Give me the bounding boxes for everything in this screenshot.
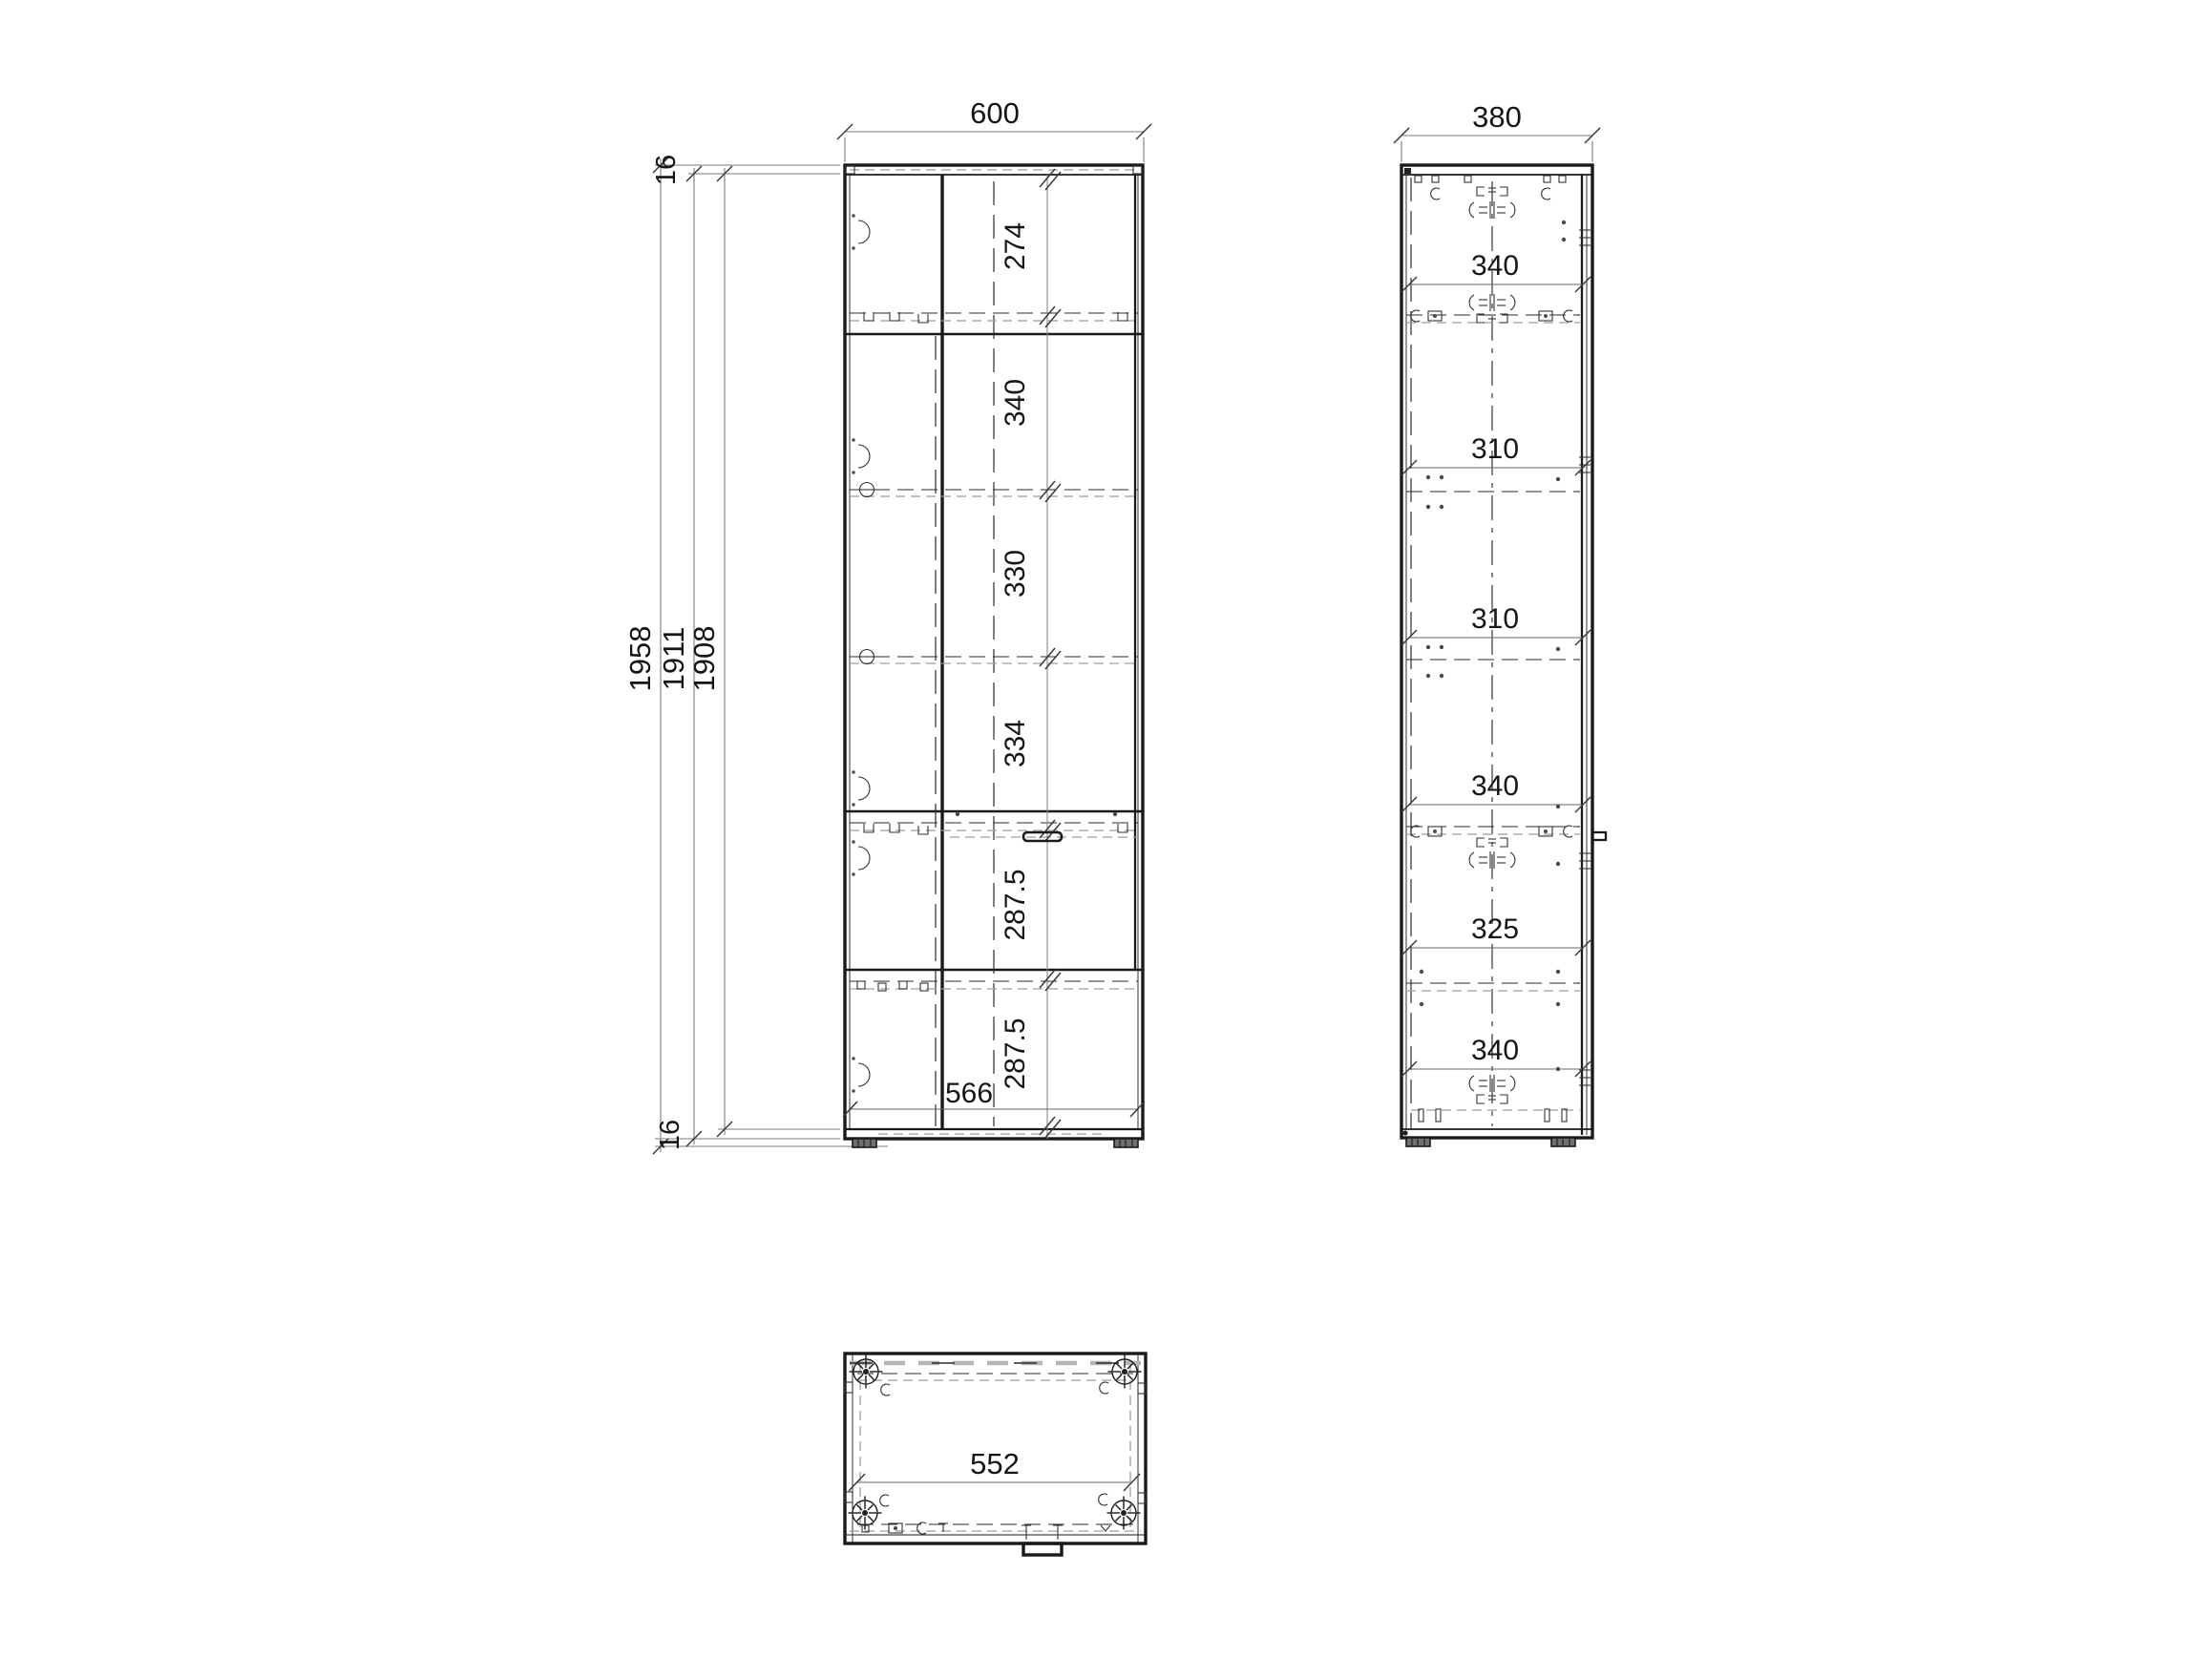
front-section-4-label: 334 <box>1000 720 1031 767</box>
front-total-height-label: 1958 <box>623 626 657 692</box>
front-section-6-label: 287.5 <box>1000 1018 1031 1089</box>
front-body-height-label: 1911 <box>657 627 690 691</box>
side-depth-label: 380 <box>1472 100 1522 134</box>
side-right-foot <box>1551 1138 1575 1146</box>
side-section-5-label: 325 <box>1471 913 1519 945</box>
technical-drawing-page: 600 1958 1911 1908 16 16 <box>0 0 2212 1658</box>
front-section-3-label: 330 <box>1000 550 1031 598</box>
bottom-inner-width-label: 552 <box>970 1447 1020 1480</box>
front-left-foot <box>853 1139 876 1147</box>
side-section-2-label: 310 <box>1471 433 1519 465</box>
page-background <box>0 0 2212 1658</box>
front-bottom-panel-label: 16 <box>655 1120 685 1150</box>
side-section-4-label: 340 <box>1471 770 1519 802</box>
front-section-2-label: 340 <box>1000 379 1031 427</box>
side-section-6-label: 340 <box>1471 1035 1519 1066</box>
drawing-canvas: 600 1958 1911 1908 16 16 <box>0 0 2212 1658</box>
side-section-1-label: 340 <box>1471 250 1519 282</box>
front-inner-width-label: 566 <box>945 1078 993 1109</box>
front-top-panel-label: 16 <box>651 155 682 185</box>
front-inner-height-label: 1908 <box>687 626 721 692</box>
front-section-5-label: 287.5 <box>1000 869 1031 940</box>
front-width-label: 600 <box>970 96 1020 130</box>
side-section-3-label: 310 <box>1471 603 1519 635</box>
front-section-1-label: 274 <box>1000 222 1031 270</box>
side-left-foot <box>1406 1138 1430 1146</box>
front-right-foot <box>1114 1139 1138 1147</box>
